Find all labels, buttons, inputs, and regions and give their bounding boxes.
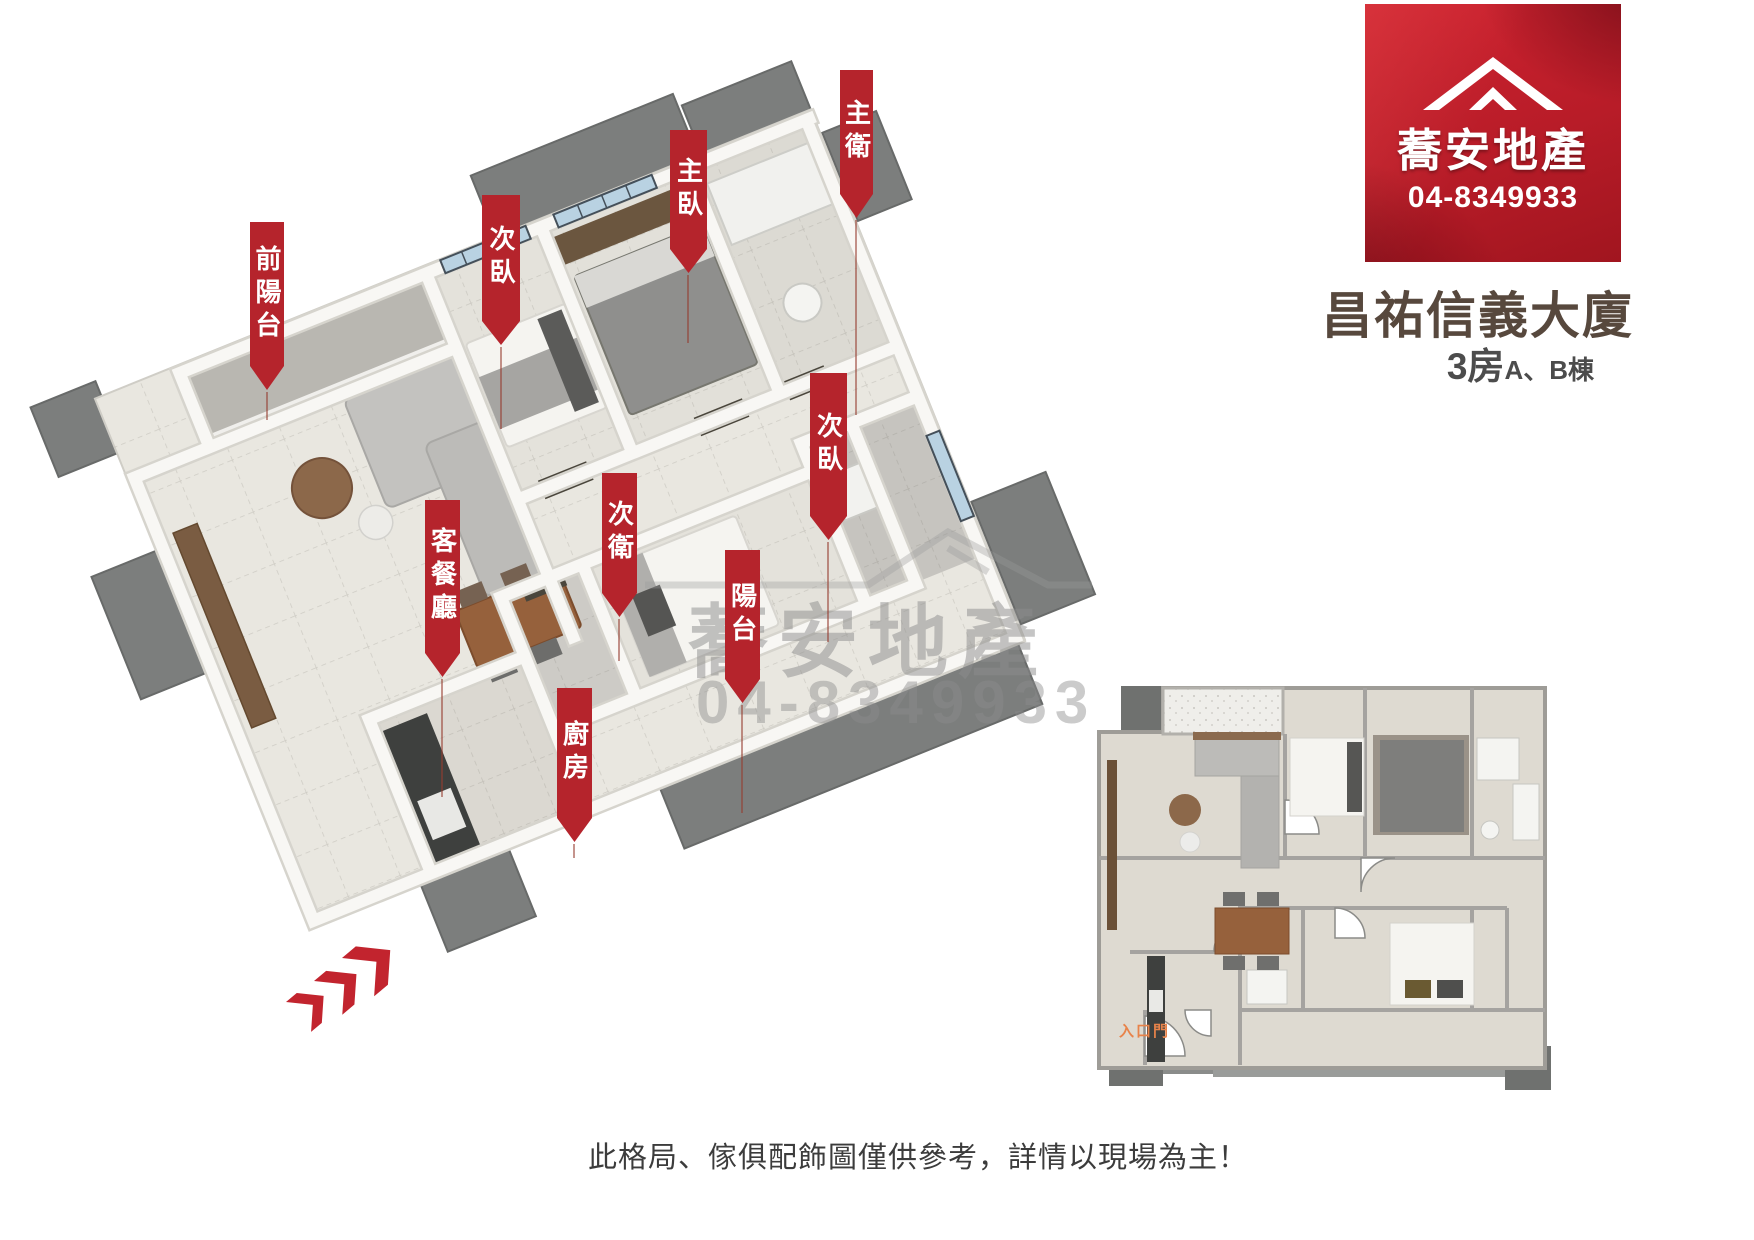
leader-balcony xyxy=(741,705,743,813)
room-label-bedroom2: 次臥 xyxy=(482,195,520,345)
agency-logo: 蕎安地產 04-8349933 xyxy=(1365,4,1621,262)
floorplan-2d: 入口門 xyxy=(1099,686,1551,1090)
leader-master-bath xyxy=(855,220,857,415)
floorplan-3d xyxy=(5,18,1128,1023)
building-subtitle: 3房A、B棟 xyxy=(1322,336,1634,390)
leader-master-bedroom xyxy=(687,275,689,343)
entrance-door-label: 入口門 xyxy=(1119,1023,1170,1040)
room-label-front-balcony: 前陽台 xyxy=(250,222,284,390)
agency-name: 蕎安地產 xyxy=(1397,114,1589,179)
leader-front-balcony xyxy=(266,392,268,420)
room-label-bedroom3: 次臥 xyxy=(810,373,847,540)
room-label-kitchen: 廚房 xyxy=(557,688,592,842)
leader-living-dining xyxy=(441,679,443,797)
room-label-master-bath: 主衛 xyxy=(840,70,873,218)
disclaimer-caption: 此格局、傢俱配飾圖僅供參考，詳情以現場為主！ xyxy=(588,1134,1248,1176)
entrance-arrows xyxy=(286,931,406,1032)
room-label-bath2: 次衛 xyxy=(602,473,637,617)
leader-bedroom2 xyxy=(500,347,502,429)
room-label-living-dining: 客餐廳 xyxy=(425,500,460,677)
leader-bedroom3 xyxy=(827,542,829,642)
roof-icon xyxy=(1417,54,1569,116)
room-count: 3房 xyxy=(1447,346,1505,387)
leader-kitchen xyxy=(573,844,575,858)
room-label-balcony: 陽台 xyxy=(725,550,760,703)
agency-phone: 04-8349933 xyxy=(1408,181,1578,215)
room-label-master-bedroom: 主臥 xyxy=(670,130,707,273)
leader-bath2 xyxy=(618,619,620,661)
building-blocks: A、B棟 xyxy=(1504,355,1594,385)
